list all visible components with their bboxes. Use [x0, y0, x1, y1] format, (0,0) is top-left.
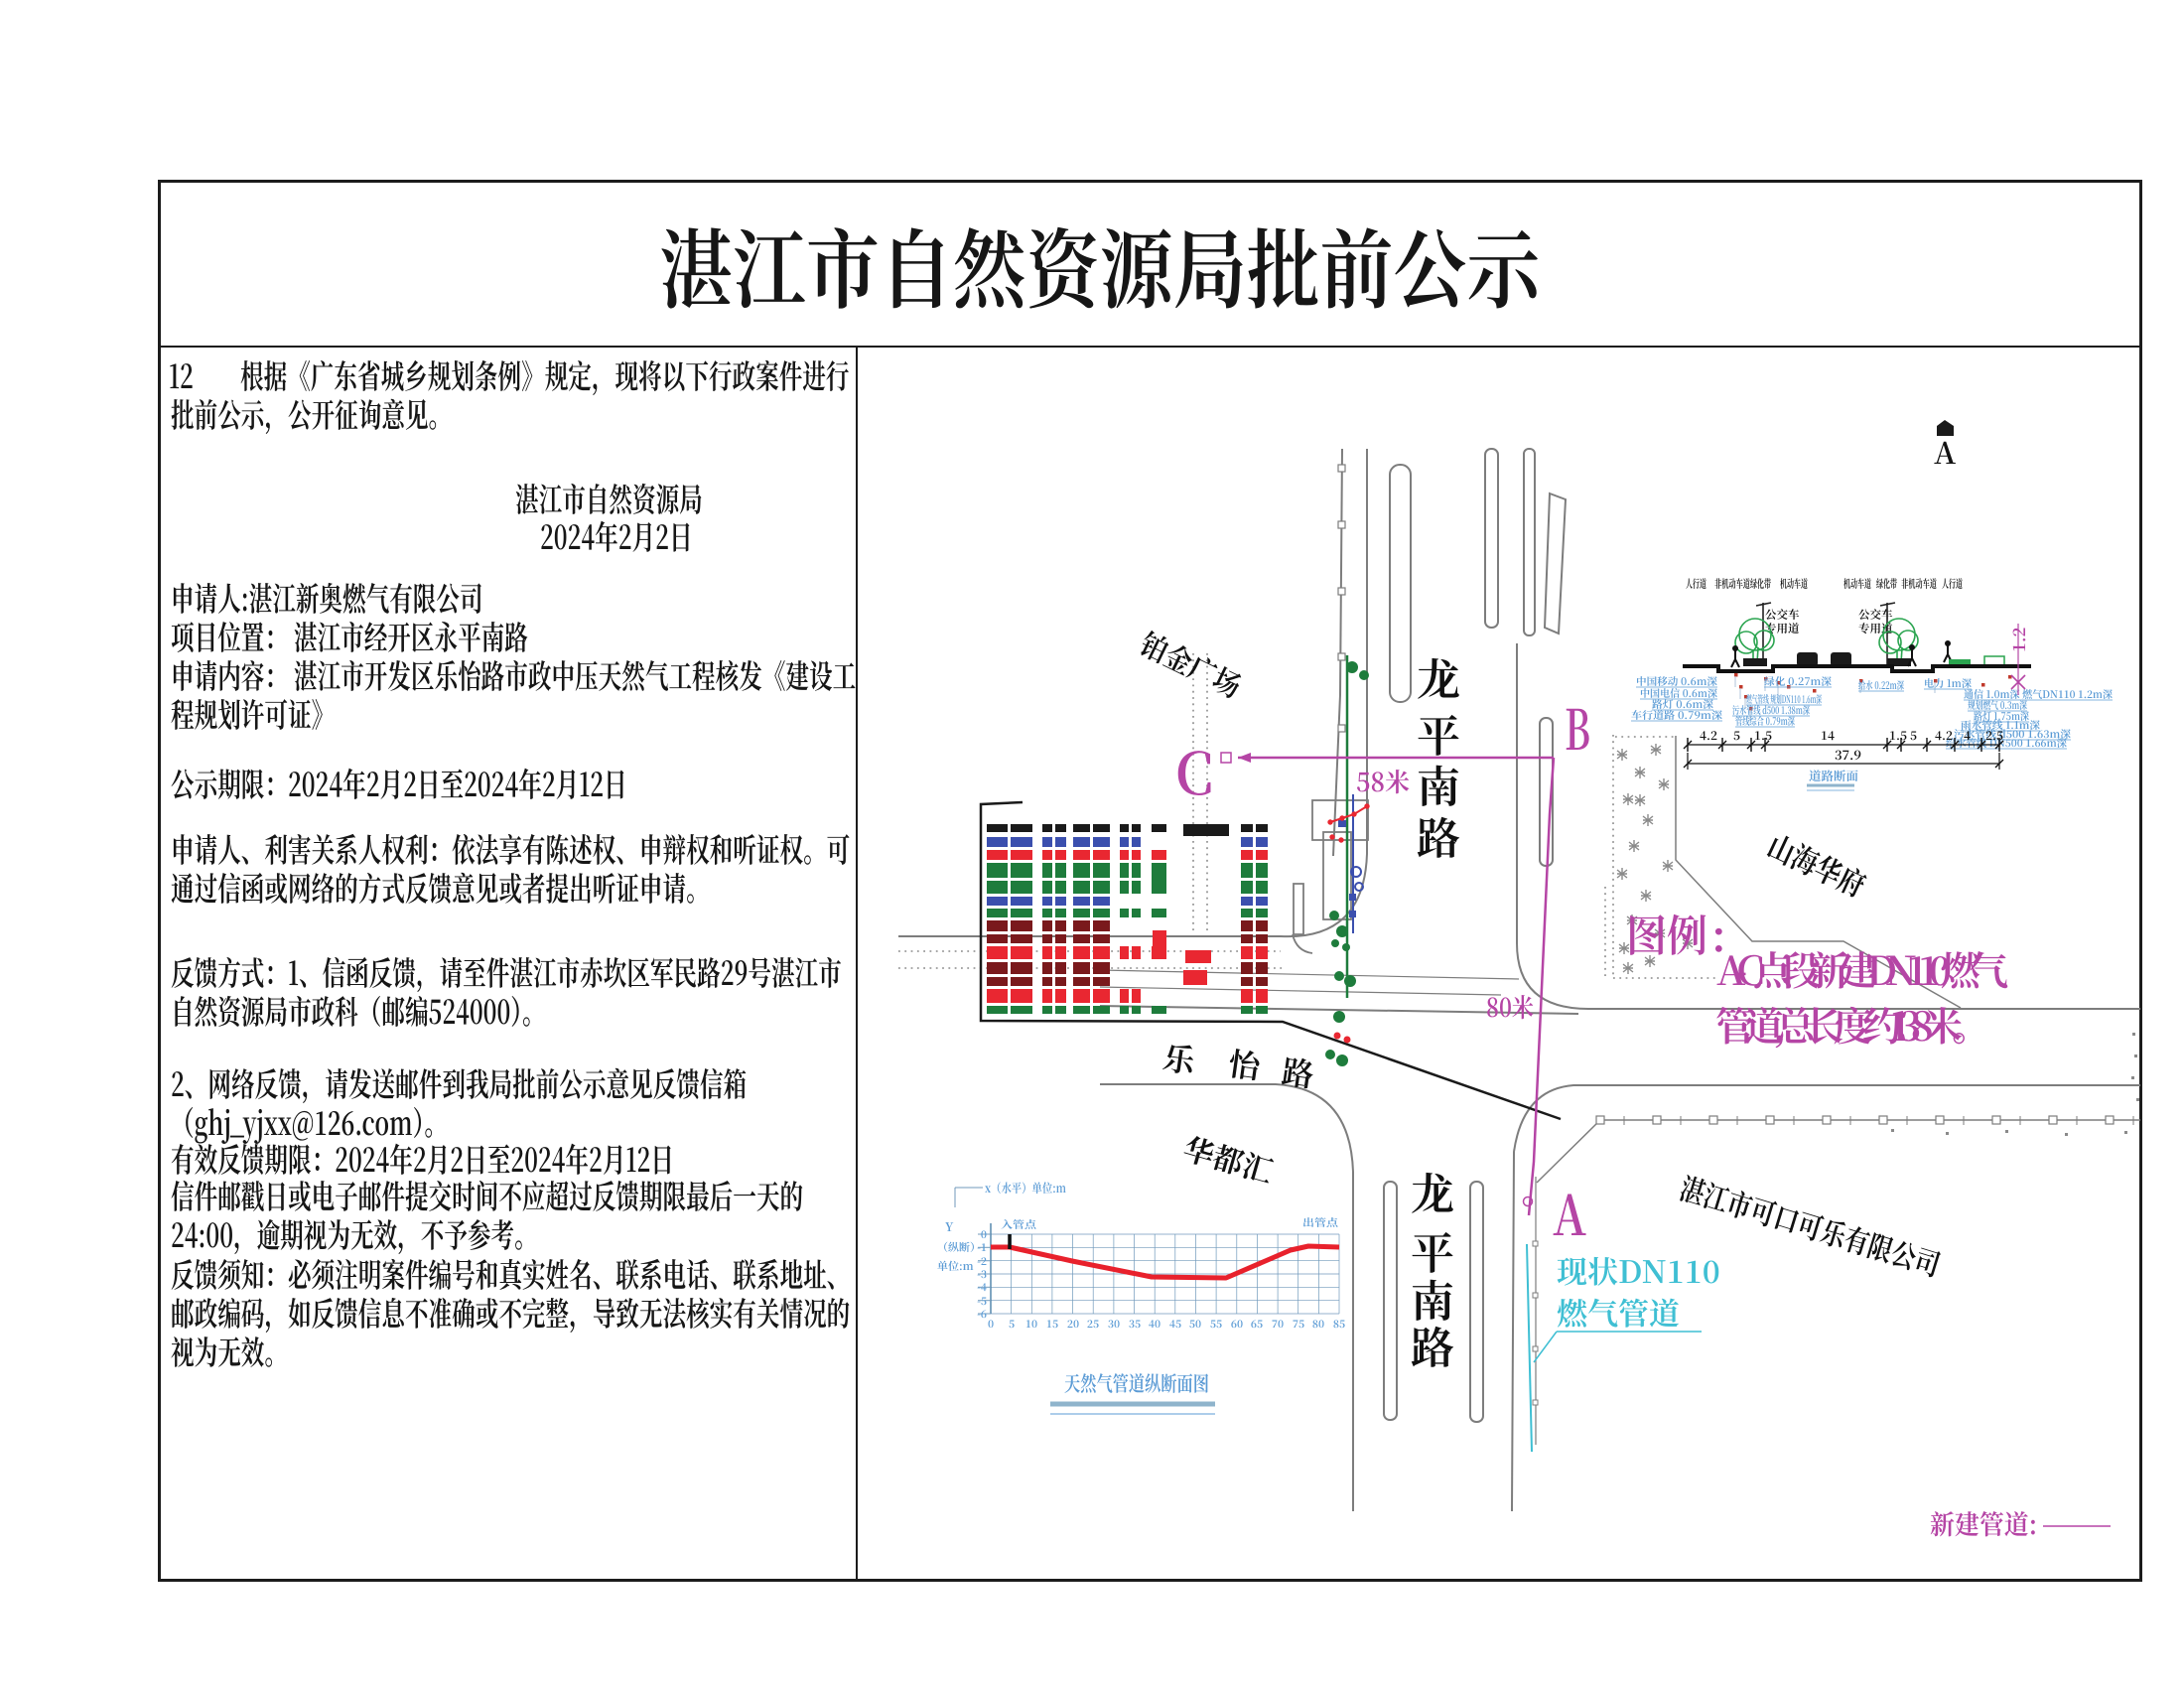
- svg-text:-4: -4: [977, 1280, 987, 1295]
- svg-text:天然气管道纵断面图: 天然气管道纵断面图: [1064, 1368, 1209, 1398]
- svg-text:路: 路: [1417, 803, 1460, 867]
- svg-text:道路断面: 道路断面: [1809, 767, 1859, 784]
- svg-text:4.2: 4.2: [1700, 727, 1717, 744]
- svg-text:4.2: 4.2: [1935, 727, 1953, 744]
- svg-text:35: 35: [1129, 1317, 1141, 1332]
- svg-text:-6: -6: [977, 1307, 987, 1322]
- svg-text:60: 60: [1231, 1317, 1243, 1332]
- svg-text:40: 40: [1149, 1317, 1160, 1332]
- svg-text:绿化带: 绿化带: [1750, 576, 1771, 592]
- svg-text:50: 50: [1189, 1317, 1201, 1332]
- svg-text:70: 70: [1272, 1317, 1284, 1332]
- svg-text:龙: 龙: [1417, 644, 1460, 708]
- svg-text:C: C: [1175, 728, 1213, 811]
- svg-text:人行道: 人行道: [1686, 576, 1706, 592]
- svg-text:37.9: 37.9: [1835, 745, 1861, 764]
- svg-text:机动车道: 机动车道: [1780, 576, 1808, 592]
- svg-text:A: A: [1553, 1173, 1586, 1252]
- svg-text:Y: Y: [945, 1218, 954, 1235]
- svg-text:5: 5: [1733, 727, 1740, 744]
- svg-text:30: 30: [1108, 1317, 1120, 1332]
- svg-text:B: B: [1565, 687, 1590, 767]
- svg-text:路: 路: [1411, 1313, 1454, 1376]
- svg-text:0: 0: [988, 1317, 994, 1332]
- svg-text:1.5: 1.5: [1889, 727, 1907, 744]
- svg-text:1.5: 1.5: [1754, 727, 1772, 744]
- svg-text:20: 20: [1067, 1317, 1079, 1332]
- svg-text:华都汇: 华都汇: [1179, 1124, 1280, 1192]
- svg-text:龙: 龙: [1411, 1159, 1454, 1222]
- svg-text:入管点: 入管点: [1001, 1217, 1037, 1232]
- svg-text:80: 80: [1312, 1317, 1324, 1332]
- svg-text:4: 4: [1964, 727, 1971, 744]
- svg-text:A: A: [1934, 429, 1956, 473]
- svg-text:（纵断）: （纵断）: [937, 1239, 981, 1255]
- svg-text:75: 75: [1293, 1317, 1304, 1332]
- svg-text:新建管道:: 新建管道:: [1930, 1503, 2037, 1542]
- svg-text:A-C点段新建DN110燃气: A-C点段新建DN110燃气: [1716, 940, 2008, 997]
- svg-text:机动车道: 机动车道: [1843, 576, 1871, 592]
- svg-text:燃气管道: 燃气管道: [1557, 1289, 1680, 1334]
- svg-text:怡: 怡: [1226, 1039, 1264, 1088]
- svg-text:10: 10: [1025, 1317, 1037, 1332]
- svg-text:58米: 58米: [1356, 763, 1410, 799]
- svg-text:非机动车道: 非机动车道: [1714, 576, 1750, 592]
- svg-text:单位:m: 单位:m: [937, 1258, 974, 1274]
- svg-text:现状DN110: 现状DN110: [1557, 1247, 1720, 1292]
- svg-text:出管点: 出管点: [1302, 1215, 1339, 1230]
- svg-text:80米: 80米: [1486, 988, 1534, 1025]
- svg-text:路: 路: [1280, 1047, 1317, 1096]
- svg-text:铂金广场: 铂金广场: [1134, 621, 1249, 707]
- svg-text:2.5: 2.5: [1985, 727, 2003, 744]
- svg-text:14: 14: [1821, 727, 1835, 744]
- svg-text:非机动车道: 非机动车道: [1901, 576, 1937, 592]
- svg-text:5: 5: [1910, 727, 1917, 744]
- svg-text:管道,总长度约138米。: 管道,总长度约138米。: [1715, 996, 1991, 1053]
- svg-text:5: 5: [1009, 1317, 1015, 1332]
- svg-text:山海华府: 山海华府: [1761, 821, 1873, 906]
- svg-text:85: 85: [1333, 1317, 1345, 1332]
- svg-text:25: 25: [1087, 1317, 1099, 1332]
- svg-text:55: 55: [1210, 1317, 1222, 1332]
- svg-text:45: 45: [1169, 1317, 1181, 1332]
- svg-text:人行道: 人行道: [1942, 576, 1963, 592]
- svg-text:65: 65: [1251, 1317, 1263, 1332]
- svg-text:乐: 乐: [1160, 1033, 1198, 1082]
- svg-text:绿化带: 绿化带: [1876, 576, 1897, 592]
- svg-text:x（水平）单位:m: x（水平）单位:m: [985, 1179, 1066, 1196]
- svg-text:图例: 图例: [1626, 901, 1707, 964]
- svg-text:15: 15: [1046, 1317, 1058, 1332]
